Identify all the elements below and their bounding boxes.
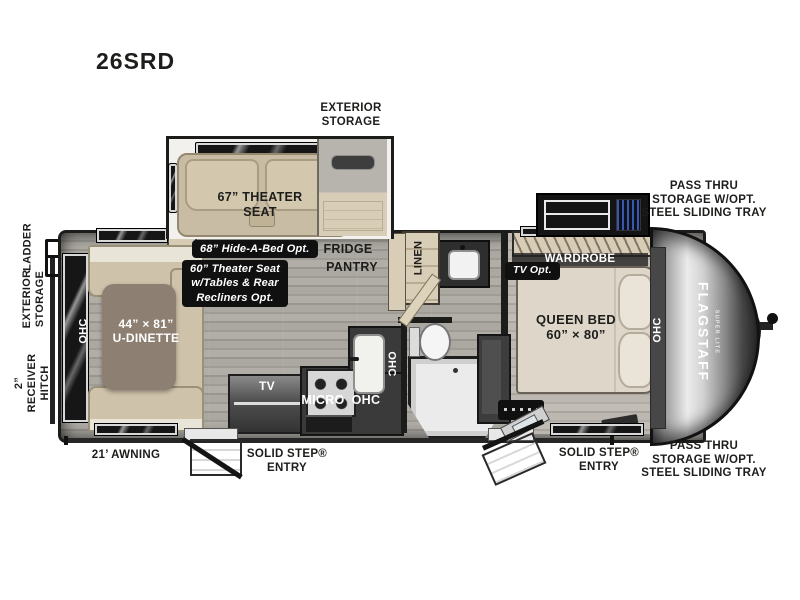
bedroom-bottom-window bbox=[550, 423, 644, 436]
awning-label: 21’ AWNING bbox=[82, 449, 170, 463]
rv-floorplan-26srd: 26SRD EXTERIOR STORAGE PASS THRU STORAGE… bbox=[0, 0, 800, 600]
fridge-cabinet bbox=[323, 201, 383, 231]
vanity-counter bbox=[438, 240, 490, 288]
queen-bed-label: QUEEN BED 60” × 80” bbox=[520, 312, 632, 343]
vanity-faucet-icon bbox=[460, 245, 465, 250]
pass-thru-storage-box bbox=[536, 193, 650, 237]
slideout-room bbox=[166, 136, 394, 239]
dinette-top-window bbox=[96, 228, 168, 243]
tv-label: TV bbox=[250, 379, 284, 393]
pass-thru-label-bottom: PASS THRU STORAGE W/OPT. STEEL SLIDING T… bbox=[636, 440, 772, 481]
bedroom-wall bbox=[501, 233, 508, 337]
exterior-storage-hatch bbox=[331, 155, 375, 170]
solid-step-label-left: SOLID STEP® ENTRY bbox=[244, 448, 330, 475]
fridge-label: FRIDGE bbox=[318, 242, 378, 257]
awning-end-cap bbox=[610, 436, 614, 445]
toilet-icon bbox=[419, 323, 451, 361]
pass-thru-label-top: PASS THRU STORAGE W/OPT. STEEL SLIDING T… bbox=[636, 180, 772, 221]
theater-opt-badge: 60” Theater Seat w/Tables & Rear Recline… bbox=[182, 260, 288, 307]
tv-opt-badge: TV Opt. bbox=[505, 262, 560, 280]
ohc-label-kitchen: OHC bbox=[348, 393, 384, 408]
faucet-icon bbox=[349, 357, 359, 361]
exterior-storage-label-top: EXTERIOR STORAGE bbox=[303, 102, 399, 129]
slide-storage-column bbox=[317, 139, 387, 236]
vanity-sink-icon bbox=[448, 250, 480, 280]
pantry-label: PANTRY bbox=[318, 260, 386, 275]
range-drawer bbox=[306, 415, 352, 432]
pantry-cabinet bbox=[388, 233, 406, 311]
bathroom-wall-left bbox=[401, 322, 407, 433]
awning-end-cap bbox=[64, 436, 68, 445]
theater-seat-label: 67” THEATER SEAT bbox=[200, 190, 320, 220]
u-dinette-label: 44” × 81” U-DINETTE bbox=[100, 317, 192, 345]
micro-label: MICRO bbox=[299, 393, 347, 408]
solid-step-label-right: SOLID STEP® ENTRY bbox=[556, 447, 642, 474]
dinette-bottom-window bbox=[94, 423, 178, 436]
shower-drain bbox=[453, 368, 458, 373]
hide-a-bed-badge: 68” Hide-A-Bed Opt. bbox=[192, 240, 318, 258]
kitchen-sink-icon bbox=[353, 334, 385, 394]
page-title: 26SRD bbox=[96, 48, 175, 75]
storage-shelf bbox=[544, 200, 610, 230]
jack-knob-icon bbox=[767, 313, 778, 324]
